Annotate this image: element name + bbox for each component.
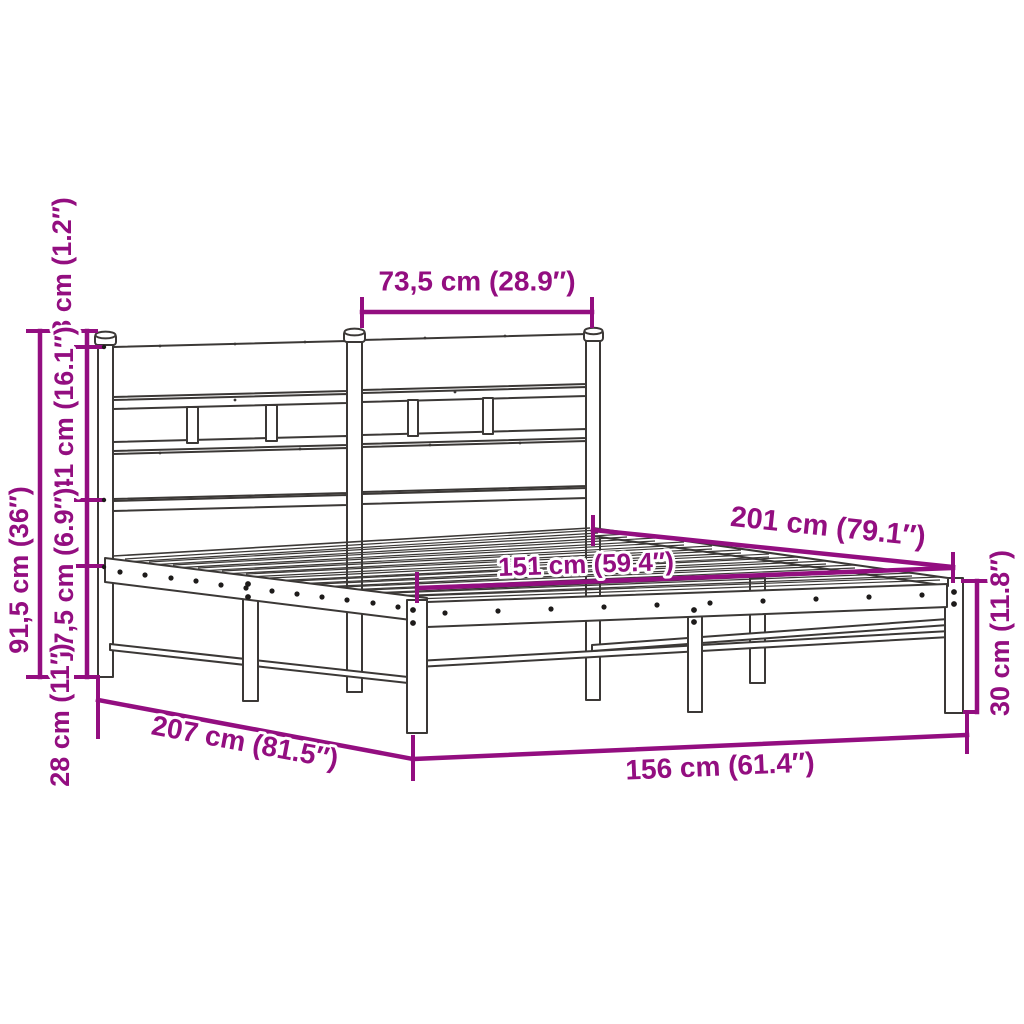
bed-dimension-diagram: 73,5 cm (28.9″) 3 cm (1.2″) 41 cm (16.1″… [0, 0, 1024, 1024]
dim-label-slat-surface-width: 151 cm (59.4″) [498, 546, 675, 582]
dim-label-headboard-panel-height: 41 cm (16.1″) [49, 326, 79, 494]
dim-label-headboard-total-height: 91,5 cm (36″) [4, 486, 34, 654]
corner-leg [407, 600, 427, 733]
dim-label-total-width: 156 cm (61.4″) [625, 746, 815, 785]
dim-label-underbed-clearance: 28 cm (11″) [45, 643, 75, 787]
dim-label-headboard-to-base-gap: 17,5 cm (6.9″) [49, 487, 79, 662]
dim-label-total-length: 207 cm (81.5″) [149, 710, 341, 775]
diagram-canvas: 73,5 cm (28.9″) 3 cm (1.2″) 41 cm (16.1″… [0, 0, 1024, 1024]
dim-label-post-cap-offset: 3 cm (1.2″) [47, 197, 77, 335]
headboard [95, 328, 603, 700]
dim-label-headboard-half-width: 73,5 cm (28.9″) [378, 266, 575, 297]
braces [110, 619, 950, 684]
dim-label-platform-height: 30 cm (11.8″) [985, 550, 1015, 716]
